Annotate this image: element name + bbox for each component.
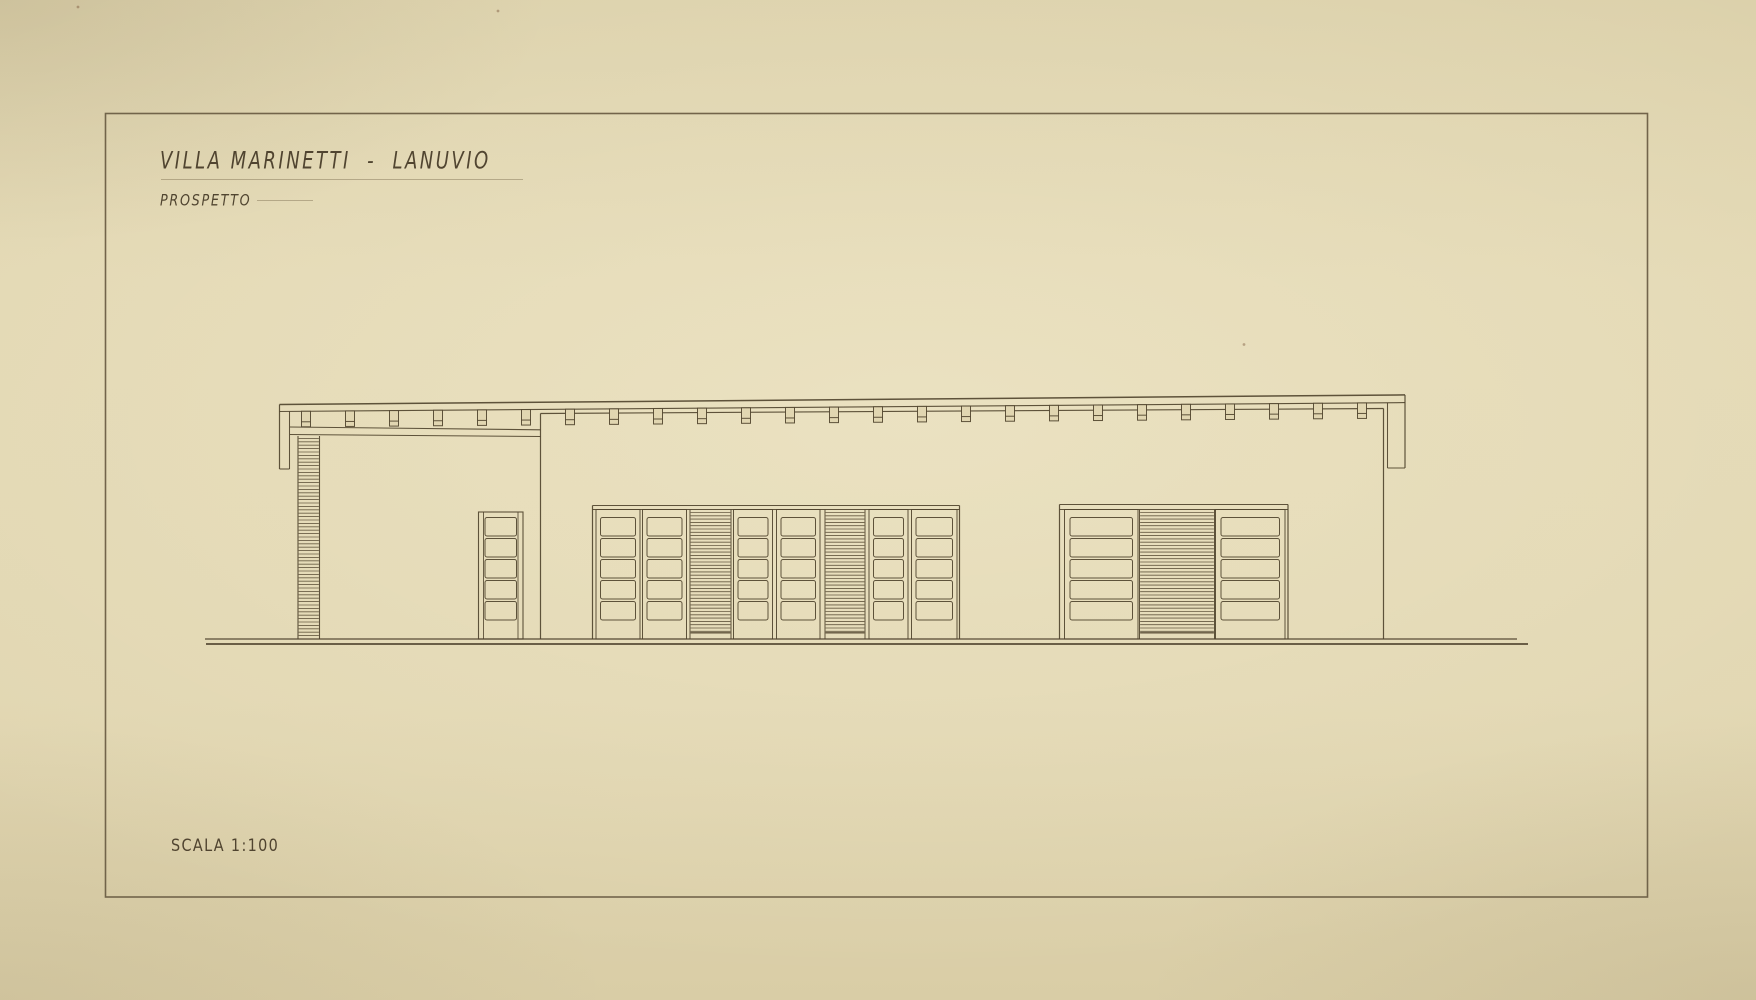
ground-line [205, 639, 1528, 644]
rafter-end [918, 406, 927, 422]
louver-panel [1140, 510, 1215, 640]
rafter-end [742, 408, 751, 424]
roof-fascia [280, 395, 1406, 469]
left-wing [290, 427, 541, 639]
siding-hatch [299, 438, 319, 635]
rafter-end [302, 411, 311, 427]
rafter-end [610, 409, 619, 425]
rafter-end [1314, 403, 1323, 419]
rafter-end [1182, 404, 1191, 420]
door-leaf [734, 510, 773, 640]
rafter-end [566, 409, 575, 425]
louver-panel [690, 510, 731, 640]
door-leaf [912, 510, 958, 640]
rafter-end [1358, 403, 1367, 419]
rafter-end [1050, 405, 1059, 421]
rafter-end [830, 407, 839, 423]
entry-door [479, 512, 524, 639]
right-door-group [1060, 505, 1289, 640]
rafter-end [434, 410, 443, 426]
rafter-end [962, 406, 971, 422]
elevation-drawing [0, 0, 1756, 1000]
rafter-end [346, 411, 355, 427]
rafter-end [786, 407, 795, 423]
main-block [541, 409, 1384, 640]
door-leaf [869, 510, 908, 640]
door-leaf [643, 510, 687, 640]
roof-rafters [302, 403, 1367, 427]
rafter-end [390, 411, 399, 427]
rafter-end [1006, 406, 1015, 422]
paper-specks [77, 6, 1246, 346]
louver-panel [825, 510, 865, 640]
rafter-end [698, 408, 707, 424]
door-leaf [1216, 510, 1286, 640]
paper-sheet: VILLA MARINETTI - LANUVIO PROSPETTO SCAL… [0, 0, 1756, 1000]
rafter-end [1094, 405, 1103, 421]
rafter-end [1226, 404, 1235, 420]
center-door-group [593, 506, 960, 640]
pencil-guides [161, 180, 523, 201]
rafter-end [522, 410, 531, 426]
rafter-end [478, 410, 487, 426]
rafter-end [1138, 405, 1147, 421]
door-leaf [777, 510, 821, 640]
door-leaf [596, 510, 640, 640]
rafter-end [654, 409, 663, 425]
rafter-end [1270, 404, 1279, 420]
rafter-end [874, 407, 883, 423]
door-leaf [1065, 510, 1139, 640]
